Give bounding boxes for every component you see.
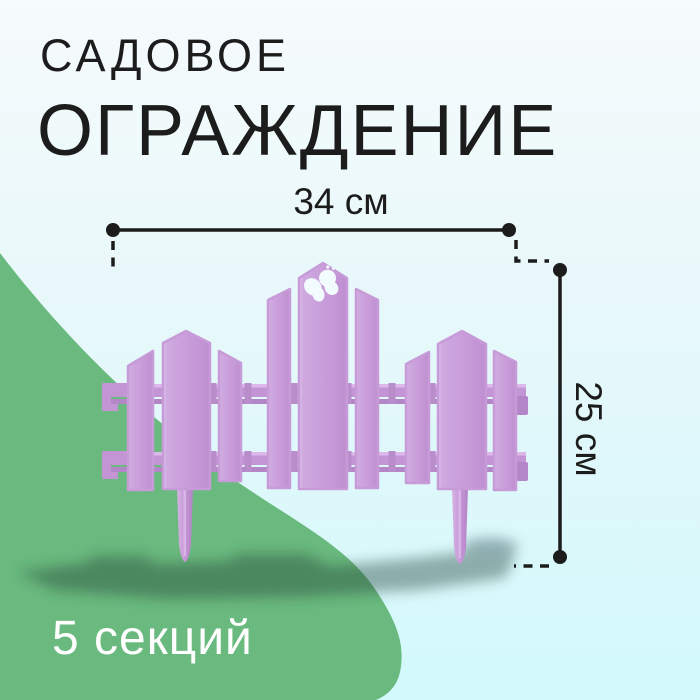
fence-picket <box>356 289 378 488</box>
fence-picket <box>128 351 153 490</box>
title-line-1: САДОВОЕ <box>40 33 558 78</box>
fence-picket <box>494 351 516 490</box>
title-line-2: ОГРАЖДЕНИЕ <box>37 95 558 167</box>
page-title: САДОВОЕ ОГРАЖДЕНИЕ <box>40 33 558 167</box>
height-dimension-label: 25 см <box>567 349 609 509</box>
fence-picket <box>406 352 429 483</box>
fence-picket <box>219 351 241 481</box>
width-dimension-label: 34 см <box>261 181 421 223</box>
product-card: САДОВОЕ ОГРАЖДЕНИЕ 34 см 25 см 5 секций <box>0 0 700 700</box>
fence-picket <box>268 289 290 488</box>
fence-picket <box>438 331 486 489</box>
fence-picket <box>163 331 210 489</box>
sections-badge: 5 секций <box>52 611 253 666</box>
